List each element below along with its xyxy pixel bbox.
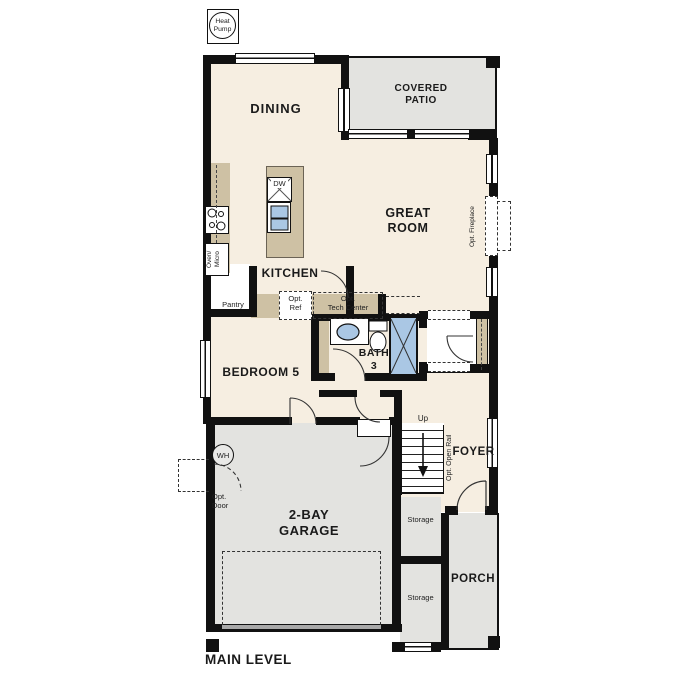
wall-garage-top-a (206, 417, 292, 425)
opt-tech-center-label: Opt. Tech Center (315, 295, 381, 312)
stairs-right-line (443, 425, 444, 493)
pantry-label: Pantry (215, 301, 251, 310)
wall-porch-top-a (445, 506, 458, 515)
heat-pump-label: Heat Pump (210, 18, 235, 32)
foyer-label: FOYER (450, 446, 497, 460)
heat-pump-symbol: Heat Pump (207, 9, 239, 44)
stairs-bottom-line (402, 492, 444, 494)
great-room-label: GREAT ROOM (373, 206, 443, 236)
garage-label: 2-BAY GARAGE (266, 507, 352, 538)
bath-wall-strip (319, 321, 329, 373)
kitchen-label: KITCHEN (257, 266, 323, 280)
closet-strip-dashed-line (481, 319, 482, 370)
counter-dashed-centerline (216, 165, 217, 243)
wall-stairs-left (394, 390, 402, 495)
dw-label: DW (271, 179, 288, 188)
wall-hall-divider-a (319, 390, 357, 397)
garage-door-swing-area (222, 551, 381, 625)
wall-storage-divider (392, 556, 441, 564)
bath3-label: BATH 3 (358, 347, 390, 372)
garage-door-band (222, 625, 381, 629)
closet-shelf-top (428, 310, 470, 320)
stair-treads (402, 430, 443, 488)
window-storage-bottom (404, 642, 432, 652)
window-foyer-right (487, 418, 498, 468)
wall-pantry-bottom (203, 309, 257, 317)
wall-closet-jamb-a (419, 314, 427, 328)
oven-micro-label: Oven/ Micro (206, 244, 228, 275)
oven-micro-box: Oven/ Micro (205, 243, 229, 276)
water-heater-symbol: WH (212, 444, 234, 466)
opt-door-label: Opt. Door (212, 493, 240, 510)
water-heater-label: WH (217, 451, 230, 460)
storage2-fill (400, 562, 441, 644)
hall-dashed-line-2 (386, 313, 420, 314)
window-bedroom-left (200, 340, 211, 398)
main-level-title: MAIN LEVEL (205, 652, 325, 668)
storage1-label: Storage (399, 516, 442, 525)
wall-bath-bottom-a (311, 373, 335, 381)
porch-label: PORCH (448, 573, 498, 587)
opt-tech-line2: Tech Center (315, 304, 381, 313)
wall-garage-top-b (316, 417, 360, 425)
garage-entry-landing (357, 419, 391, 437)
slider-dining-patio (338, 88, 350, 132)
window-patio-bottom-1 (348, 129, 408, 139)
opt-fireplace-outer (497, 201, 511, 251)
cooktop (205, 206, 229, 234)
storage1-fill (400, 497, 441, 558)
dining-label: DINING (238, 101, 314, 117)
wall-closet-jamb-b (419, 362, 427, 381)
window-patio-bottom-2 (414, 129, 470, 139)
opt-door-outline (178, 459, 209, 492)
bedroom5-label: BEDROOM 5 (216, 365, 306, 379)
floor-plan: Oven/ Micro Heat Pump WH (0, 0, 687, 687)
window-dining-top (235, 53, 315, 64)
closet-fill (427, 318, 477, 366)
shower (389, 316, 418, 376)
wall-patio-corner (486, 56, 500, 68)
wall-bath-left (311, 314, 319, 381)
covered-patio-label: COVERED PATIO (385, 83, 457, 107)
hall-dashed-line-1 (386, 296, 420, 297)
heat-pump-circle: Heat Pump (209, 12, 236, 39)
window-great-right-1 (486, 154, 498, 184)
post-garage-corner (206, 639, 219, 652)
opt-fireplace-label: Opt. Fireplace (469, 196, 481, 258)
up-label: Up (409, 414, 437, 424)
post-porch (488, 636, 500, 648)
opt-ref-label: Opt. Ref (283, 295, 308, 312)
closet-shelf-bottom (428, 362, 470, 372)
storage2-label: Storage (399, 594, 442, 603)
wall-porch-top-b (485, 506, 498, 515)
window-great-right-2 (486, 267, 498, 297)
bath-vanity (330, 318, 369, 345)
island-sink-box (267, 202, 291, 233)
